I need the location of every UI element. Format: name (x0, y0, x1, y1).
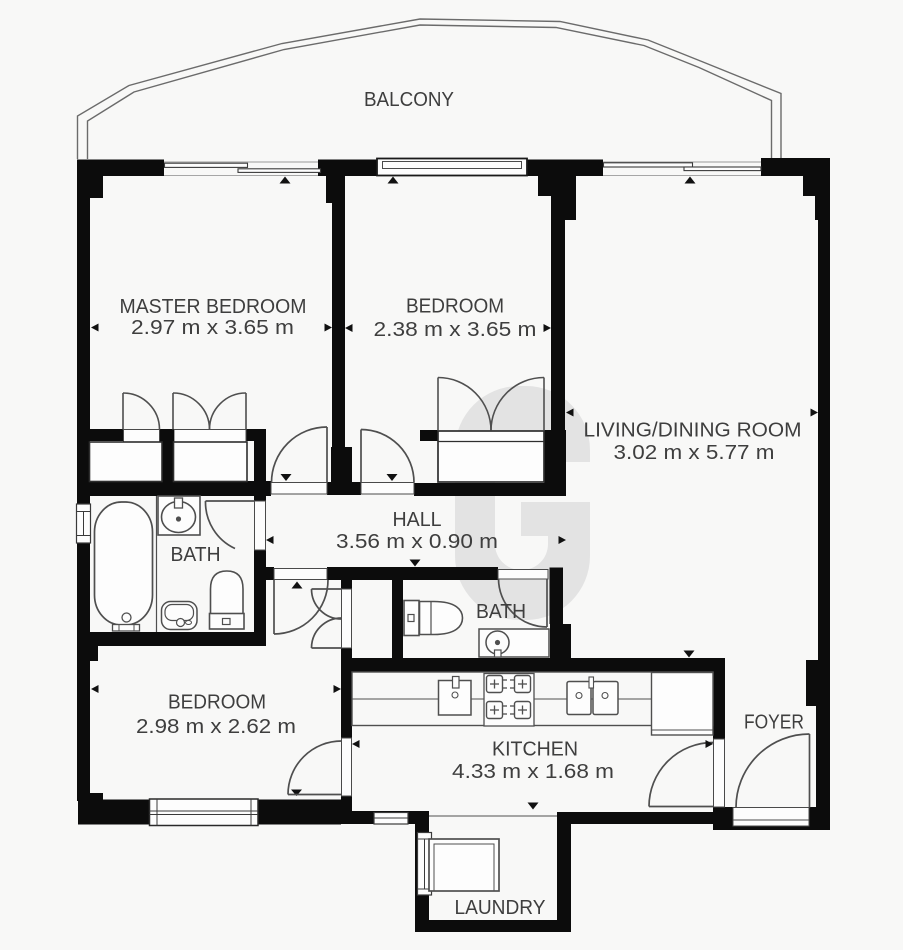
svg-text:4.33 m x 1.68 m: 4.33 m x 1.68 m (452, 761, 614, 783)
svg-text:2.98 m x 2.62 m: 2.98 m x 2.62 m (136, 716, 296, 738)
svg-text:HALL: HALL (393, 509, 442, 531)
svg-text:BATH: BATH (171, 544, 221, 566)
svg-text:2.97 m x 3.65 m: 2.97 m x 3.65 m (131, 317, 294, 339)
svg-text:FOYER: FOYER (744, 712, 804, 734)
svg-text:3.56 m x 0.90 m: 3.56 m x 0.90 m (336, 531, 498, 553)
svg-text:MASTER BEDROOM: MASTER BEDROOM (120, 296, 307, 318)
svg-text:3.02 m x 5.77 m: 3.02 m x 5.77 m (614, 442, 775, 464)
svg-text:BEDROOM: BEDROOM (168, 692, 266, 714)
svg-text:LIVING/DINING ROOM: LIVING/DINING ROOM (584, 420, 802, 442)
svg-text:2.38 m x 3.65 m: 2.38 m x 3.65 m (374, 319, 537, 341)
svg-text:BALCONY: BALCONY (364, 89, 454, 111)
svg-text:LAUNDRY: LAUNDRY (455, 897, 546, 919)
svg-text:KITCHEN: KITCHEN (492, 739, 578, 761)
svg-text:BATH: BATH (476, 601, 526, 623)
svg-text:BEDROOM: BEDROOM (406, 296, 504, 318)
